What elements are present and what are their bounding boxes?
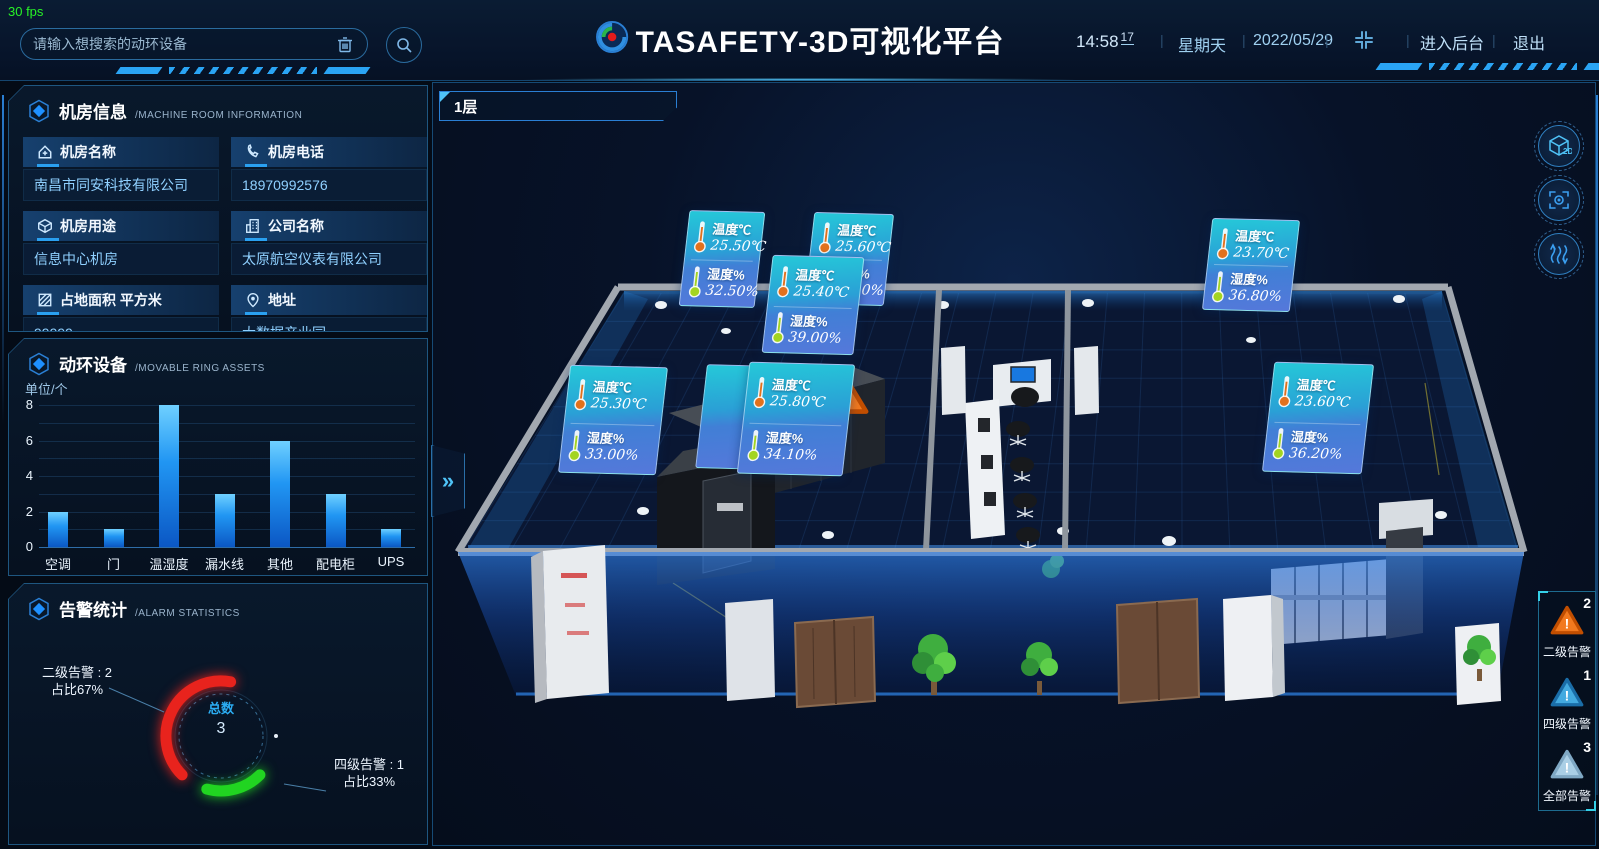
deco-stripes: [1378, 62, 1599, 71]
app-title-wrap: TASAFETY-3D可视化平台: [595, 17, 1005, 61]
assets-panel: 动环设备 /MOVABLE RING ASSETS 单位/个 02468空调门温…: [8, 338, 428, 576]
app-title: TASAFETY-3D可视化平台: [636, 17, 1005, 61]
sensor-card[interactable]: 温度℃ 25.40℃ 湿度% 39.00%: [762, 255, 865, 355]
area-icon: [37, 292, 53, 308]
panel-subtitle: /ALARM STATISTICS: [135, 608, 240, 619]
sensor-card[interactable]: 温度℃ 23.70℃ 湿度% 36.80%: [1202, 218, 1300, 312]
home-icon: [37, 144, 53, 160]
temp-label: 温度℃: [592, 376, 650, 396]
field-value: 太原航空仪表有限公司: [231, 243, 427, 275]
search-input[interactable]: 请输入想搜索的动环设备: [20, 28, 368, 60]
clear-search-icon[interactable]: [335, 34, 355, 54]
alarm-panel: 告警统计 /ALARM STATISTICS 二级告警 : 2占比67% 四级告…: [8, 583, 428, 845]
sensor-card[interactable]: 温度℃ 25.50℃ 湿度% 32.50%: [679, 210, 766, 308]
divider: |: [1492, 32, 1496, 48]
reset-view-button[interactable]: [1538, 179, 1580, 221]
humidity-value: 39.00%: [787, 329, 842, 346]
app-logo-icon: [595, 20, 629, 59]
field-label: 地址: [231, 285, 427, 315]
alarm-badge-panel: 2 ! 二级告警 1 ! 四级告警 3 ! 全部告警: [1538, 591, 1596, 811]
humidity-value: 36.80%: [1228, 287, 1283, 304]
backend-button[interactable]: 进入后台: [1420, 30, 1484, 54]
temp-value: 23.60℃: [1294, 393, 1351, 410]
room-info-field: 公司名称 太原航空仪表有限公司: [231, 211, 427, 275]
floor-selector[interactable]: 1层: [439, 91, 677, 121]
humidity-label: 湿度%: [586, 427, 641, 447]
temp-label: 温度℃: [1234, 226, 1292, 246]
badge-label: 四级告警: [1539, 715, 1595, 732]
humidity-label: 湿度%: [1229, 269, 1284, 289]
bar-category-label: 温湿度: [141, 554, 197, 573]
warning-triangle-icon: !: [1549, 604, 1585, 637]
bar-category-label: 空调: [30, 554, 86, 573]
floor-label: 1层: [454, 96, 477, 117]
humidity-value: 36.20%: [1288, 445, 1343, 462]
clock-weekday: 星期天: [1178, 32, 1226, 56]
pin-icon: [245, 292, 261, 308]
humidity-value: 33.00%: [584, 446, 639, 463]
temp-value: 25.80℃: [769, 393, 826, 410]
divider: |: [1160, 32, 1164, 48]
svg-text:!: !: [1565, 688, 1570, 704]
deco-stripes: [118, 66, 368, 75]
field-label: 公司名称: [231, 211, 427, 241]
temp-value: 25.30℃: [590, 395, 647, 412]
room-info-panel: 机房信息 /MACHINE ROOM INFORMATION 机房名称 南昌市同…: [8, 85, 428, 332]
phone-icon: [245, 144, 261, 160]
sensor-card[interactable]: 温度℃ 25.80℃ 湿度% 34.10%: [737, 362, 855, 477]
panel-title: 告警统计: [59, 596, 127, 621]
bar-门[interactable]: [104, 529, 124, 547]
alarm-total-label: 总数: [199, 698, 243, 717]
humidity-label: 湿度%: [765, 427, 820, 447]
badge-label: 二级告警: [1539, 643, 1595, 660]
alarm-level4-label: 四级告警 : 1占比33%: [323, 756, 415, 790]
badge-count: 2: [1583, 595, 1591, 611]
humidity-label: 湿度%: [789, 310, 844, 330]
sidebar-collapse-button[interactable]: »: [431, 445, 465, 517]
warning-triangle-icon: !: [1549, 748, 1585, 781]
header-glow: [520, 78, 1080, 81]
clock-seconds: 17: [1121, 30, 1134, 45]
badge-count: 3: [1583, 739, 1591, 755]
bar-category-label: 漏水线: [197, 554, 253, 573]
alarm-badge-二级告警[interactable]: 2 ! 二级告警: [1539, 598, 1595, 660]
panel-subtitle: /MACHINE ROOM INFORMATION: [135, 110, 302, 121]
room-info-grid: 机房名称 南昌市同安科技有限公司 机房电话 18970992576 机房用途 信…: [9, 129, 427, 349]
room-info-field: 机房电话 18970992576: [231, 137, 427, 201]
temp-label: 温度℃: [836, 220, 894, 240]
cube-icon: [37, 218, 53, 234]
temp-value: 25.50℃: [710, 238, 767, 255]
temp-value: 25.40℃: [793, 283, 850, 300]
bar-温湿度[interactable]: [159, 405, 179, 547]
bar-category-label: 其他: [252, 554, 308, 573]
alarm-badge-四级告警[interactable]: 1 ! 四级告警: [1539, 670, 1595, 732]
bar-漏水线[interactable]: [215, 494, 235, 547]
diamond-icon: [27, 597, 51, 621]
divider: |: [1325, 32, 1329, 48]
bar-category-label: 门: [86, 554, 142, 573]
search-placeholder: 请输入想搜索的动环设备: [33, 34, 335, 54]
exit-button[interactable]: 退出: [1513, 30, 1545, 54]
bar-空调[interactable]: [48, 512, 68, 548]
alarm-level2-label: 二级告警 : 2占比67%: [31, 664, 123, 698]
diamond-icon: [27, 99, 51, 123]
fullscreen-icon[interactable]: [1352, 28, 1376, 57]
alarm-badge-全部告警[interactable]: 3 ! 全部告警: [1539, 742, 1595, 804]
bar-配电柜[interactable]: [326, 494, 346, 547]
field-value: 18970992576: [231, 169, 427, 201]
temp-label: 温度℃: [794, 264, 852, 284]
bar-category-label: UPS: [363, 554, 419, 569]
svg-text:2D: 2D: [1563, 147, 1572, 156]
badge-label: 全部告警: [1539, 787, 1595, 804]
room-info-field: 机房名称 南昌市同安科技有限公司: [23, 137, 219, 201]
clock: 14:5817: [1076, 30, 1134, 52]
divider: |: [1242, 32, 1246, 48]
temp-label: 温度℃: [711, 219, 769, 239]
temp-label: 温度℃: [1296, 374, 1354, 394]
temp-value: 25.60℃: [834, 239, 891, 256]
humidity-value: 34.10%: [763, 446, 818, 463]
sensor-card[interactable]: 温度℃ 25.30℃ 湿度% 33.00%: [558, 365, 668, 476]
bar-category-label: 配电柜: [308, 554, 364, 573]
warning-triangle-icon: !: [1549, 676, 1585, 709]
chevron-right-icon: »: [442, 468, 454, 494]
temp-value: 23.70℃: [1233, 245, 1290, 262]
badge-count: 1: [1583, 667, 1591, 683]
humidity-label: 湿度%: [706, 264, 761, 284]
field-label: 机房用途: [23, 211, 219, 241]
view-2d-toggle-button[interactable]: 2D: [1538, 125, 1580, 167]
bar-chart: 02468空调门温湿度漏水线其他配电柜UPS: [9, 339, 427, 575]
svg-text:!: !: [1565, 760, 1570, 776]
divider: |: [1406, 32, 1410, 48]
alarm-total-value: 3: [199, 720, 243, 738]
sensor-card[interactable]: 温度℃ 23.60℃ 湿度% 36.20%: [1262, 362, 1374, 475]
clock-time: 14:58: [1076, 32, 1119, 51]
bar-其他[interactable]: [270, 441, 290, 548]
bar-UPS[interactable]: [381, 529, 401, 547]
search-button[interactable]: [386, 27, 422, 63]
airflow-button[interactable]: [1538, 233, 1580, 275]
room-info-field: 机房用途 信息中心机房: [23, 211, 219, 275]
clock-date: 2022/05/29: [1253, 32, 1333, 50]
humidity-value: 32.50%: [704, 283, 759, 300]
field-label: 机房名称: [23, 137, 219, 167]
panel-title: 机房信息: [59, 98, 127, 123]
svg-text:!: !: [1565, 616, 1570, 632]
temp-label: 温度℃: [771, 374, 829, 394]
field-label: 机房电话: [231, 137, 427, 167]
fps-counter: 30 fps: [8, 4, 43, 19]
humidity-label: 湿度%: [1290, 426, 1345, 446]
building-icon: [245, 218, 261, 234]
field-label: 占地面积 平方米: [23, 285, 219, 315]
scene-3d-viewport[interactable]: 1层 » ! ! 温度℃ 25.50℃ 湿度% 32.50% 温度℃ 25.60…: [432, 82, 1596, 846]
field-value: 信息中心机房: [23, 243, 219, 275]
deco-edge-line: [1596, 95, 1598, 795]
field-value: 南昌市同安科技有限公司: [23, 169, 219, 201]
deco-edge-line: [2, 95, 4, 425]
